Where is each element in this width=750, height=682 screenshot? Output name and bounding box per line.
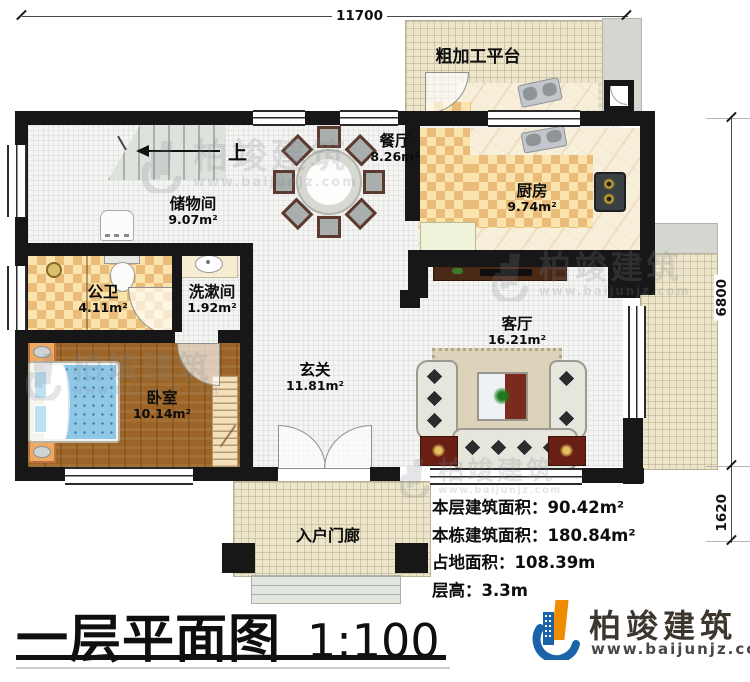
stair-direction-line	[148, 150, 220, 152]
wall	[172, 252, 182, 332]
room-label-dining: 餐厅 8.26m²	[370, 133, 419, 164]
end-table	[420, 436, 458, 466]
bed	[28, 361, 120, 443]
stove	[594, 172, 626, 212]
wall	[408, 250, 640, 267]
wall	[405, 111, 420, 221]
wall	[240, 243, 253, 343]
room-label-kitchen: 厨房 9.74m²	[507, 183, 556, 214]
dimension-label-right-lower: 1620	[714, 490, 730, 536]
chair	[317, 216, 341, 238]
room-label-foyer: 玄关 11.81m²	[286, 362, 344, 393]
company-logo-url: www.baijunjz.com	[591, 640, 750, 658]
company-logo-icon	[532, 596, 584, 664]
plan-title: 一层平面图 1:100	[16, 597, 440, 672]
window	[430, 468, 582, 485]
kitchen-counter-vertical	[418, 128, 470, 228]
wall	[400, 290, 420, 308]
wall	[15, 243, 253, 256]
window	[65, 467, 193, 485]
dimension-line-top	[22, 16, 628, 17]
chair	[273, 170, 295, 194]
porch-column	[395, 543, 428, 573]
nightstand	[28, 441, 56, 463]
wall	[193, 467, 278, 481]
room-label-public-bath: 公卫 4.11m²	[78, 284, 127, 315]
window	[488, 110, 580, 127]
wall	[640, 111, 655, 295]
window	[7, 145, 27, 217]
end-table	[548, 436, 586, 466]
dimension-label-right-upper: 6800	[714, 275, 730, 321]
terrace-door-window	[628, 306, 646, 418]
sofa	[416, 360, 458, 440]
nightstand	[28, 341, 56, 363]
plant-decor	[452, 268, 463, 274]
stairs-up-label: 上	[228, 138, 247, 165]
room-label-bedroom: 卧室 10.14m²	[133, 390, 191, 421]
info-block: 本层建筑面积：90.42m² 本栋建筑面积：180.84m² 占地面积：108.…	[432, 494, 636, 604]
wall	[240, 330, 253, 481]
chair	[317, 126, 341, 148]
title-underline	[16, 655, 446, 660]
title-underline-thin	[16, 667, 450, 669]
dining-table	[296, 149, 362, 215]
room-label-washroom: 洗漱间 1.92m²	[187, 284, 236, 315]
window	[253, 110, 305, 126]
coffee-table	[477, 372, 528, 421]
washing-machine	[100, 210, 134, 241]
wall	[15, 330, 175, 343]
tv	[480, 269, 532, 276]
floor-plan-canvas: 上	[0, 0, 750, 682]
room-label-living: 客厅 16.21m²	[488, 316, 546, 347]
wall	[608, 250, 640, 298]
chair	[363, 170, 385, 194]
window	[7, 266, 27, 330]
wall	[582, 468, 644, 483]
room-label-porch: 入户门廊	[296, 527, 360, 545]
plan-title-text: 一层平面图	[16, 597, 281, 672]
room-label-storage: 储物间 9.07m²	[168, 196, 217, 227]
info-footprint-area: 占地面积：108.39m	[432, 549, 636, 577]
dimension-line-right	[731, 118, 732, 543]
porch-column	[222, 543, 255, 573]
info-floor-area: 本层建筑面积：90.42m²	[432, 494, 636, 522]
dimension-label-top: 11700	[332, 8, 387, 24]
wall	[370, 467, 400, 481]
window	[340, 110, 398, 126]
room-label-platform: 粗加工平台	[436, 48, 521, 67]
wardrobe	[212, 376, 238, 468]
wall	[15, 467, 65, 481]
info-building-area: 本栋建筑面积：180.84m²	[432, 522, 636, 550]
shower-head	[46, 262, 62, 278]
